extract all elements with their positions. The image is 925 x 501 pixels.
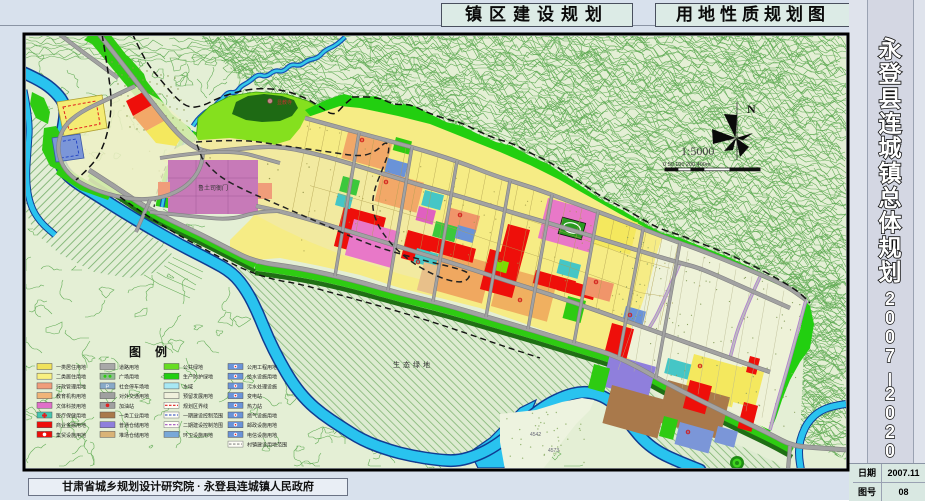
- svg-text:鲁土司衙门: 鲁土司衙门: [198, 184, 228, 192]
- svg-text:4573: 4573: [548, 448, 559, 454]
- svg-text:二期建设控制范围: 二期建设控制范围: [183, 422, 223, 429]
- svg-text:社会停车场地: 社会停车场地: [119, 383, 149, 390]
- svg-text:一类居住用地: 一类居住用地: [56, 364, 86, 371]
- svg-text:给水设施用地: 给水设施用地: [247, 374, 277, 381]
- svg-text:N: N: [747, 102, 756, 116]
- svg-text:污水处理设施: 污水处理设施: [247, 383, 277, 390]
- svg-text:堆场仓储用地: 堆场仓储用地: [119, 432, 149, 439]
- svg-text:对外交通用地: 对外交通用地: [119, 393, 149, 400]
- svg-text:燃气设施用地: 燃气设施用地: [247, 413, 277, 420]
- svg-text:村镇建设用地范围: 村镇建设用地范围: [247, 442, 287, 449]
- svg-text:行政管理用地: 行政管理用地: [56, 383, 86, 390]
- svg-text:生态绿地: 生态绿地: [393, 360, 433, 369]
- svg-text:1:5000: 1:5000: [681, 144, 714, 158]
- svg-text:邮政设施用地: 邮政设施用地: [247, 422, 277, 429]
- svg-text:商业金融用地: 商业金融用地: [56, 422, 86, 429]
- svg-text:公共绿地: 公共绿地: [183, 364, 203, 371]
- svg-text:0 50 100 200: 0 50 100 200 400m: [663, 162, 711, 168]
- svg-text:一类工业用地: 一类工业用地: [119, 413, 149, 420]
- svg-text:环卫设施用地: 环卫设施用地: [183, 432, 213, 439]
- svg-text:集贸设施用地: 集贸设施用地: [56, 432, 86, 439]
- svg-text:道路用地: 道路用地: [119, 364, 139, 371]
- svg-text:生产防护绿地: 生产防护绿地: [183, 374, 213, 381]
- svg-text:水域: 水域: [183, 383, 193, 390]
- svg-text:医疗保健用地: 医疗保健用地: [56, 413, 86, 420]
- svg-text:公用工程用地: 公用工程用地: [247, 364, 277, 371]
- svg-text:图例: 图例: [129, 344, 181, 359]
- svg-text:加油站: 加油站: [119, 403, 134, 410]
- svg-text:预留发展用地: 预留发展用地: [183, 393, 213, 400]
- svg-text:二类居住用地: 二类居住用地: [56, 374, 86, 381]
- svg-text:规划区界线: 规划区界线: [183, 403, 208, 410]
- svg-text:P: P: [106, 384, 110, 390]
- svg-text:电信设施用地: 电信设施用地: [247, 432, 277, 439]
- svg-text:变电站: 变电站: [247, 393, 262, 400]
- svg-text:文体科技用地: 文体科技用地: [56, 403, 86, 410]
- svg-text:教育机构用地: 教育机构用地: [56, 393, 86, 400]
- svg-text:热力站: 热力站: [247, 403, 262, 410]
- svg-text:一期建设控制范围: 一期建设控制范围: [183, 413, 223, 420]
- svg-text:广场用地: 广场用地: [119, 374, 139, 381]
- svg-text:显教寺: 显教寺: [277, 99, 292, 106]
- svg-text:普通仓储用地: 普通仓储用地: [119, 422, 149, 429]
- svg-text:4542: 4542: [530, 432, 541, 438]
